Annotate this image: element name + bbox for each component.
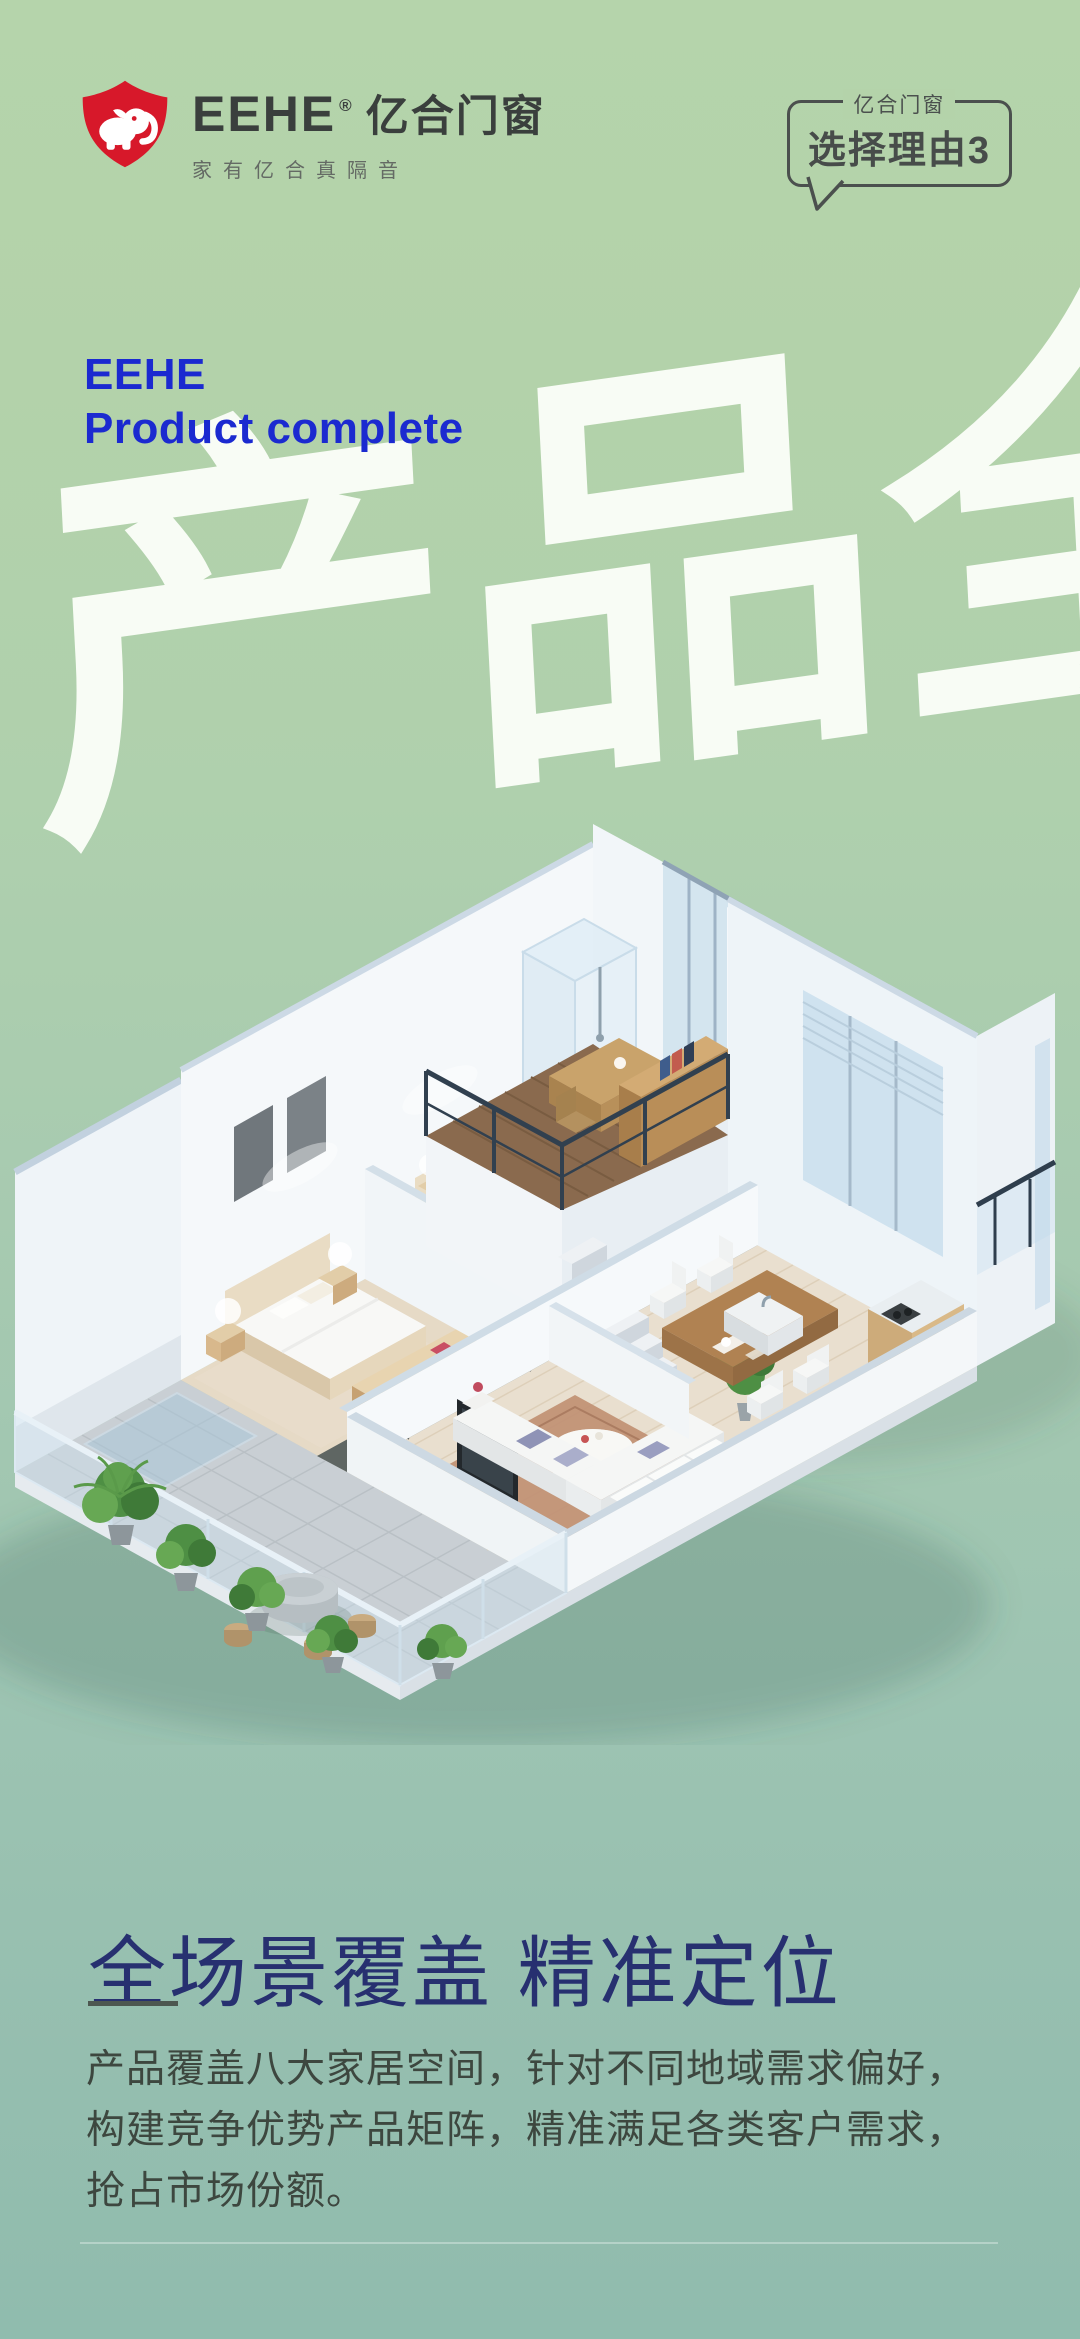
shield-elephant-icon: [78, 78, 172, 170]
section-title: 全场景覆盖 精准定位: [88, 1911, 842, 2023]
section-body: 产品覆盖八大家居空间，针对不同地域需求偏好， 构建竞争优势产品矩阵，精准满足各类…: [86, 2040, 966, 2222]
body-line: 产品覆盖八大家居空间，针对不同地域需求偏好，: [86, 2040, 966, 2101]
right-balcony: [977, 993, 1055, 1366]
brand-name: EEHE: [192, 85, 336, 143]
reason-badge: 亿合门窗 选择理由3: [787, 100, 1012, 187]
speech-bubble-tail-icon: [800, 176, 846, 214]
hero-subtitle: EEHE Product complete: [84, 348, 464, 455]
body-line: 抢占市场份额。: [86, 2162, 966, 2223]
desk-lamp: [614, 1057, 626, 1069]
title-underline: [88, 2001, 178, 2006]
brand-text: EEHE ® 亿合门窗 家有亿合真隔音: [192, 78, 546, 183]
poster-canvas: EEHE ® 亿合门窗 家有亿合真隔音 亿合门窗 选择理由3 EEHE Prod…: [0, 0, 1080, 2339]
brand-name-cn: 亿合门窗: [366, 82, 546, 144]
badge-title: 选择理由3: [808, 119, 991, 174]
registered-mark: ®: [339, 96, 352, 116]
brand-tagline: 家有亿合真隔音: [192, 154, 546, 183]
footer-divider: [80, 2242, 998, 2244]
hero-subtitle-line1: EEHE: [84, 348, 464, 402]
apartment-cutaway-illustration: [0, 735, 1080, 1745]
body-line: 构建竞争优势产品矩阵，精准满足各类客户需求，: [86, 2101, 966, 2162]
hero-subtitle-line2: Product complete: [84, 402, 464, 456]
brand-header: EEHE ® 亿合门窗 家有亿合真隔音: [78, 78, 546, 183]
bedside-lamp: [328, 1242, 352, 1266]
bedside-lamp: [215, 1298, 241, 1324]
badge-label: 亿合门窗: [843, 89, 955, 119]
